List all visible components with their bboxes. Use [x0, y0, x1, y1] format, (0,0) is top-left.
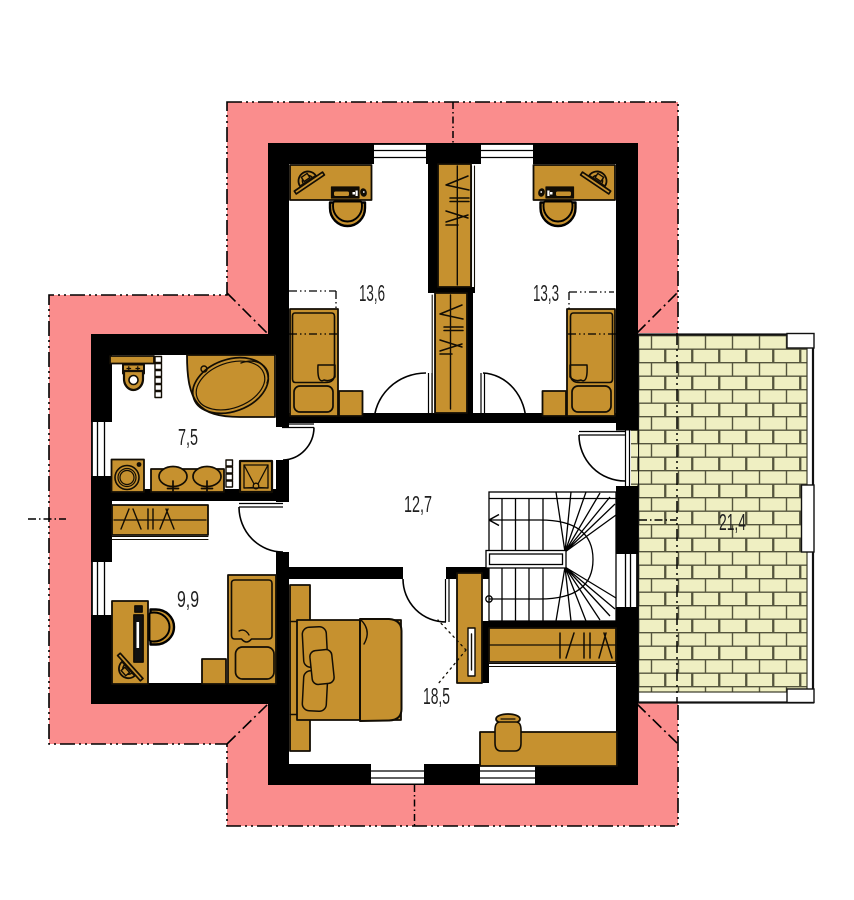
svg-text:13,6: 13,6 [359, 280, 385, 306]
svg-text:7,5: 7,5 [178, 424, 198, 450]
svg-text:9,9: 9,9 [177, 586, 199, 612]
svg-text:12,7: 12,7 [404, 491, 432, 517]
svg-text:21,4: 21,4 [719, 509, 746, 535]
svg-text:18,5: 18,5 [423, 683, 450, 709]
svg-text:13,3: 13,3 [533, 280, 559, 306]
